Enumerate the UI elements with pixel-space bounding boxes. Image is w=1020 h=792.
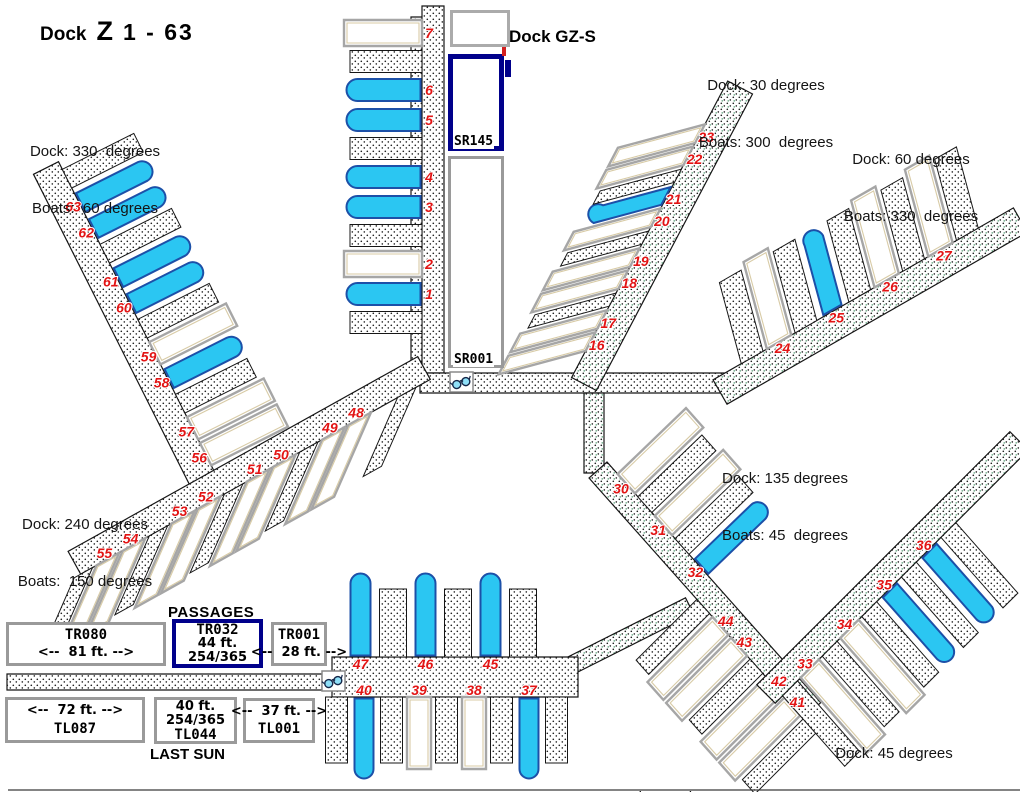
slip-number-37: 37 xyxy=(521,682,538,698)
annotation-line: Dock: 45 degrees xyxy=(788,744,1000,763)
slip-number-52: 52 xyxy=(198,489,214,505)
finger-pier xyxy=(350,51,422,73)
boat-6[interactable] xyxy=(347,79,421,101)
slip-38[interactable] xyxy=(462,697,486,769)
walkway-stub-south xyxy=(584,393,604,473)
slip-number-59: 59 xyxy=(141,348,157,364)
slip-number-38: 38 xyxy=(466,682,482,698)
slip-39[interactable] xyxy=(407,697,431,769)
slip-number-57: 57 xyxy=(179,423,196,439)
finger-pier xyxy=(381,697,403,763)
annotation-dock-135-boats-225: Dock: 135 degrees Boats:225 degrees xyxy=(612,750,792,792)
slip-number-17: 17 xyxy=(601,315,618,331)
last-sun-label: LAST SUN xyxy=(150,746,225,763)
boat-46[interactable] xyxy=(416,574,436,656)
slip-number-3: 3 xyxy=(425,199,433,215)
berth-label-sr145: SR145 xyxy=(453,134,494,149)
slip-number-20: 20 xyxy=(653,213,670,229)
berth-name: TL087 xyxy=(54,722,96,736)
boat-40[interactable] xyxy=(355,699,374,779)
slip-number-47: 47 xyxy=(352,656,370,672)
finger-pier xyxy=(350,312,422,334)
berth-days: 254/365 xyxy=(166,714,225,728)
glasses-icon[interactable] xyxy=(322,671,345,691)
slip-number-26: 26 xyxy=(881,279,898,295)
slip-number-30: 30 xyxy=(613,480,629,496)
boat-47[interactable] xyxy=(351,574,371,656)
berth-box-tl087[interactable]: <-- 72 ft. --> TL087 xyxy=(5,697,145,743)
berth-size: 40 ft. xyxy=(176,700,215,714)
slip-number-5: 5 xyxy=(425,112,433,128)
slip-number-58: 58 xyxy=(154,374,170,390)
slip-number-7: 7 xyxy=(425,25,434,41)
title-letter: Z xyxy=(96,16,113,47)
annotation-line: Boats: 60 degrees xyxy=(6,199,184,218)
boat-3[interactable] xyxy=(347,196,421,218)
finger-pier xyxy=(380,589,407,657)
slip-number-18: 18 xyxy=(622,275,638,291)
boat-45[interactable] xyxy=(481,574,501,656)
finger-pier xyxy=(510,589,537,657)
slip-number-56: 56 xyxy=(192,449,208,465)
slip-number-50: 50 xyxy=(273,447,289,463)
slip-number-48: 48 xyxy=(347,405,364,421)
annotation-dock-135-boats-45: Dock: 135 degrees Boats: 45 degrees xyxy=(700,431,870,583)
berth-box-tl044[interactable]: 40 ft. 254/365 TL044 xyxy=(154,697,237,744)
berth-box-tl001[interactable]: <-- 37 ft. --> TL001 xyxy=(243,698,315,743)
marina-map-page: 7654321636261605958575648495051525354551… xyxy=(0,0,1020,792)
dock-strip-central xyxy=(422,6,444,373)
navy-tick-marker xyxy=(505,60,511,77)
berth-name: TR001 xyxy=(278,628,320,642)
berth-name: TL001 xyxy=(258,722,300,736)
side-tie-slip[interactable] xyxy=(450,10,510,47)
annotation-line: Dock: 135 degrees xyxy=(700,469,870,488)
annotation-line: Boats: 45 degrees xyxy=(700,526,870,545)
finger-pier xyxy=(436,697,458,763)
slip-number-61: 61 xyxy=(103,273,119,289)
berth-size: <-- 72 ft. --> xyxy=(27,704,123,718)
slip-number-60: 60 xyxy=(116,299,132,315)
berth-days: 254/365 xyxy=(188,651,247,665)
berth-name: TR032 xyxy=(196,623,238,637)
annotation-line: Dock: 60 degrees xyxy=(816,150,1006,169)
berth-box-tr032-selected[interactable]: TR032 44 ft. 254/365 xyxy=(172,619,263,668)
berth-name: TR080 xyxy=(65,628,107,642)
berth-size: 44 ft. xyxy=(198,637,237,651)
slip-number-31: 31 xyxy=(650,522,666,538)
boat-1[interactable] xyxy=(347,283,421,305)
berth-label-sr001: SR001 xyxy=(453,352,494,367)
annotation-dock-330: Dock: 330 degrees Boats: 60 degrees xyxy=(6,104,184,256)
slip-number-19: 19 xyxy=(633,253,649,269)
slip-number-46: 46 xyxy=(417,656,434,672)
annotation-line: Boats: 150 degrees xyxy=(0,572,170,591)
berth-size: <-- 81 ft. --> xyxy=(38,646,134,660)
slip-number-51: 51 xyxy=(247,461,263,477)
boat-4[interactable] xyxy=(347,166,421,188)
berth-box-tr001[interactable]: TR001 <-- 28 ft. --> xyxy=(271,622,327,666)
berth-size: <-- 28 ft. --> xyxy=(251,646,347,660)
slip-number-45: 45 xyxy=(482,656,499,672)
finger-pier xyxy=(491,697,513,763)
annotation-dock-45: Dock: 45 degrees Boats: 135 degrees xyxy=(788,706,1000,792)
slip-number-6: 6 xyxy=(425,82,433,98)
slip-number-25: 25 xyxy=(828,309,845,325)
slip-number-16: 16 xyxy=(589,337,605,353)
page-title: Dock Z 1 - 63 xyxy=(40,16,194,47)
slip-2[interactable] xyxy=(344,251,422,277)
slip-number-33: 33 xyxy=(797,656,813,672)
slip-number-35: 35 xyxy=(876,576,892,592)
slip-number-44: 44 xyxy=(717,613,734,629)
annotation-dock-60: Dock: 60 degrees Boats: 330 degrees xyxy=(816,112,1006,264)
red-tick-marker xyxy=(502,47,506,56)
annotation-line: Dock: 30 degrees xyxy=(676,76,856,95)
finger-pier xyxy=(350,225,422,247)
slip-7[interactable] xyxy=(344,20,422,46)
berth-size: <-- 37 ft. --> xyxy=(231,705,327,719)
annotation-line: Dock: 135 degrees xyxy=(612,788,792,792)
slip-number-4: 4 xyxy=(424,169,433,185)
glasses-icon[interactable] xyxy=(450,372,473,392)
title-word: Dock xyxy=(40,24,86,46)
annotation-line: Dock: 240 degrees xyxy=(0,515,170,534)
slip-number-21: 21 xyxy=(665,191,682,207)
slip-number-36: 36 xyxy=(916,537,932,553)
finger-pier xyxy=(546,697,568,763)
slip-number-49: 49 xyxy=(321,419,338,435)
finger-pier xyxy=(445,589,472,657)
slip-number-42: 42 xyxy=(770,673,787,689)
dock-gz-label: Dock GZ-S xyxy=(509,27,596,47)
berth-name: TL044 xyxy=(174,728,216,742)
slip-number-39: 39 xyxy=(411,682,427,698)
berth-box-sr001[interactable] xyxy=(448,156,504,368)
finger-pier xyxy=(326,697,348,763)
annotation-line: Dock: 330 degrees xyxy=(6,142,184,161)
dock-strip-bottom-left xyxy=(7,674,322,690)
slip-number-24: 24 xyxy=(774,340,791,356)
slip-number-43: 43 xyxy=(736,634,753,650)
slip-number-53: 53 xyxy=(172,503,188,519)
slip-number-34: 34 xyxy=(837,616,853,632)
title-range: 1 - 63 xyxy=(123,19,194,46)
annotation-dock-240: Dock: 240 degrees Boats: 150 degrees xyxy=(0,477,170,629)
slip-number-1: 1 xyxy=(425,286,433,302)
annotation-line: Boats: 330 degrees xyxy=(816,207,1006,226)
boat-37[interactable] xyxy=(520,699,539,779)
boat-5[interactable] xyxy=(347,109,421,131)
slip-number-40: 40 xyxy=(355,682,372,698)
slip-number-2: 2 xyxy=(424,256,433,272)
finger-pier xyxy=(350,138,422,160)
berth-box-tr080[interactable]: TR080 <-- 81 ft. --> xyxy=(6,622,166,666)
